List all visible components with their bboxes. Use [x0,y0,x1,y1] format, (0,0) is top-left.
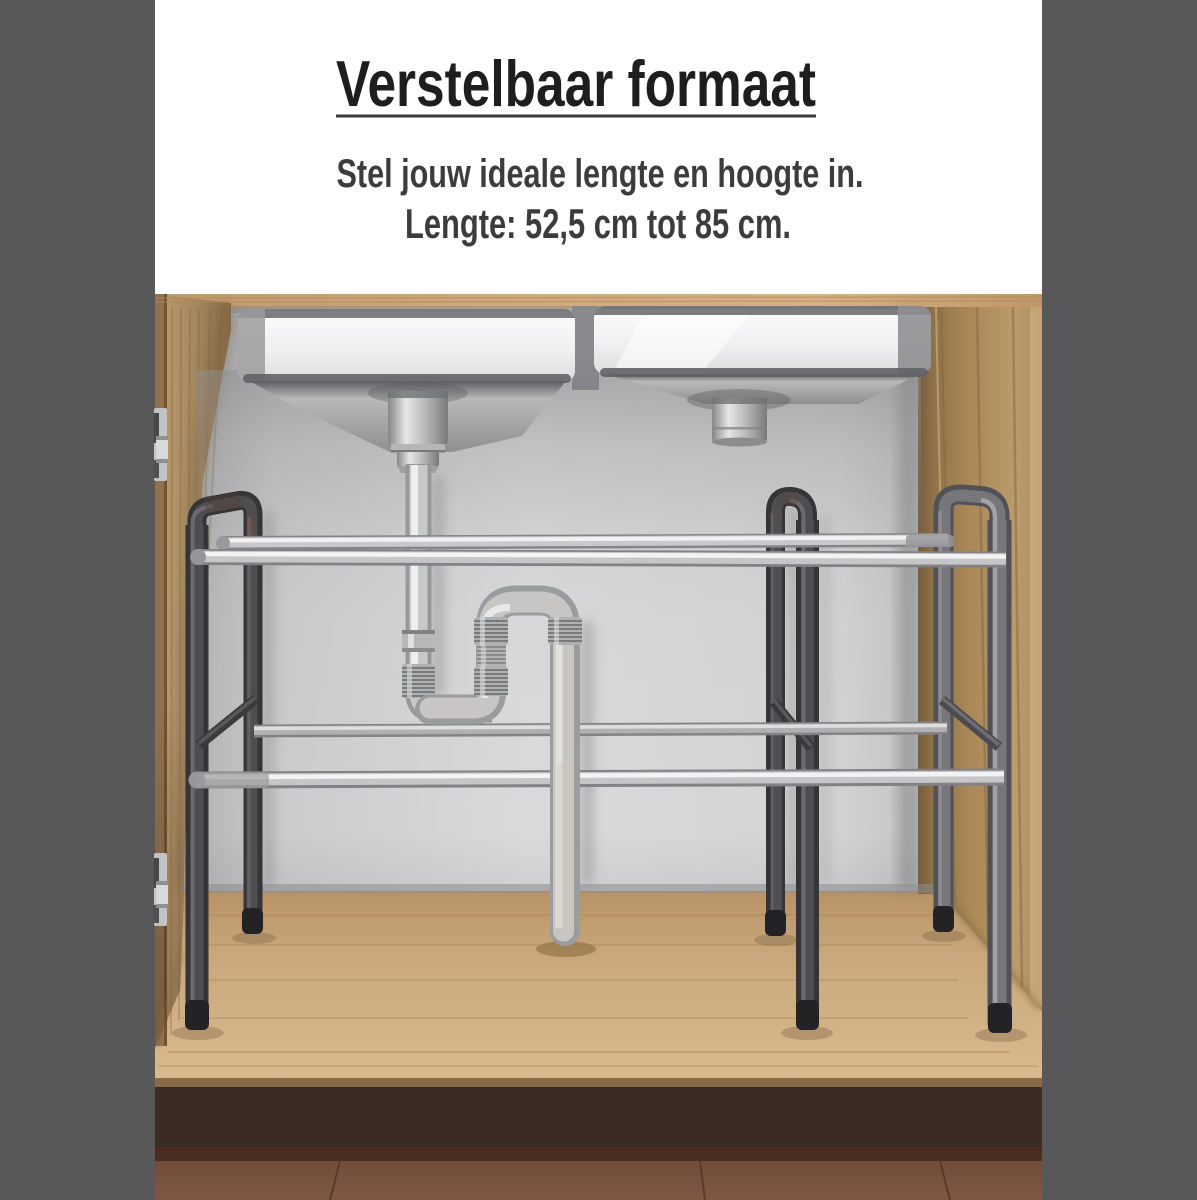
svg-text:Stel jouw ideale lengte en hoo: Stel jouw ideale lengte en hoogte in. [337,152,864,196]
svg-text:Lengte: 52,5 cm tot 85 cm.: Lengte: 52,5 cm tot 85 cm. [405,200,791,247]
svg-text:Verstelbaar formaat: Verstelbaar formaat [336,47,816,120]
